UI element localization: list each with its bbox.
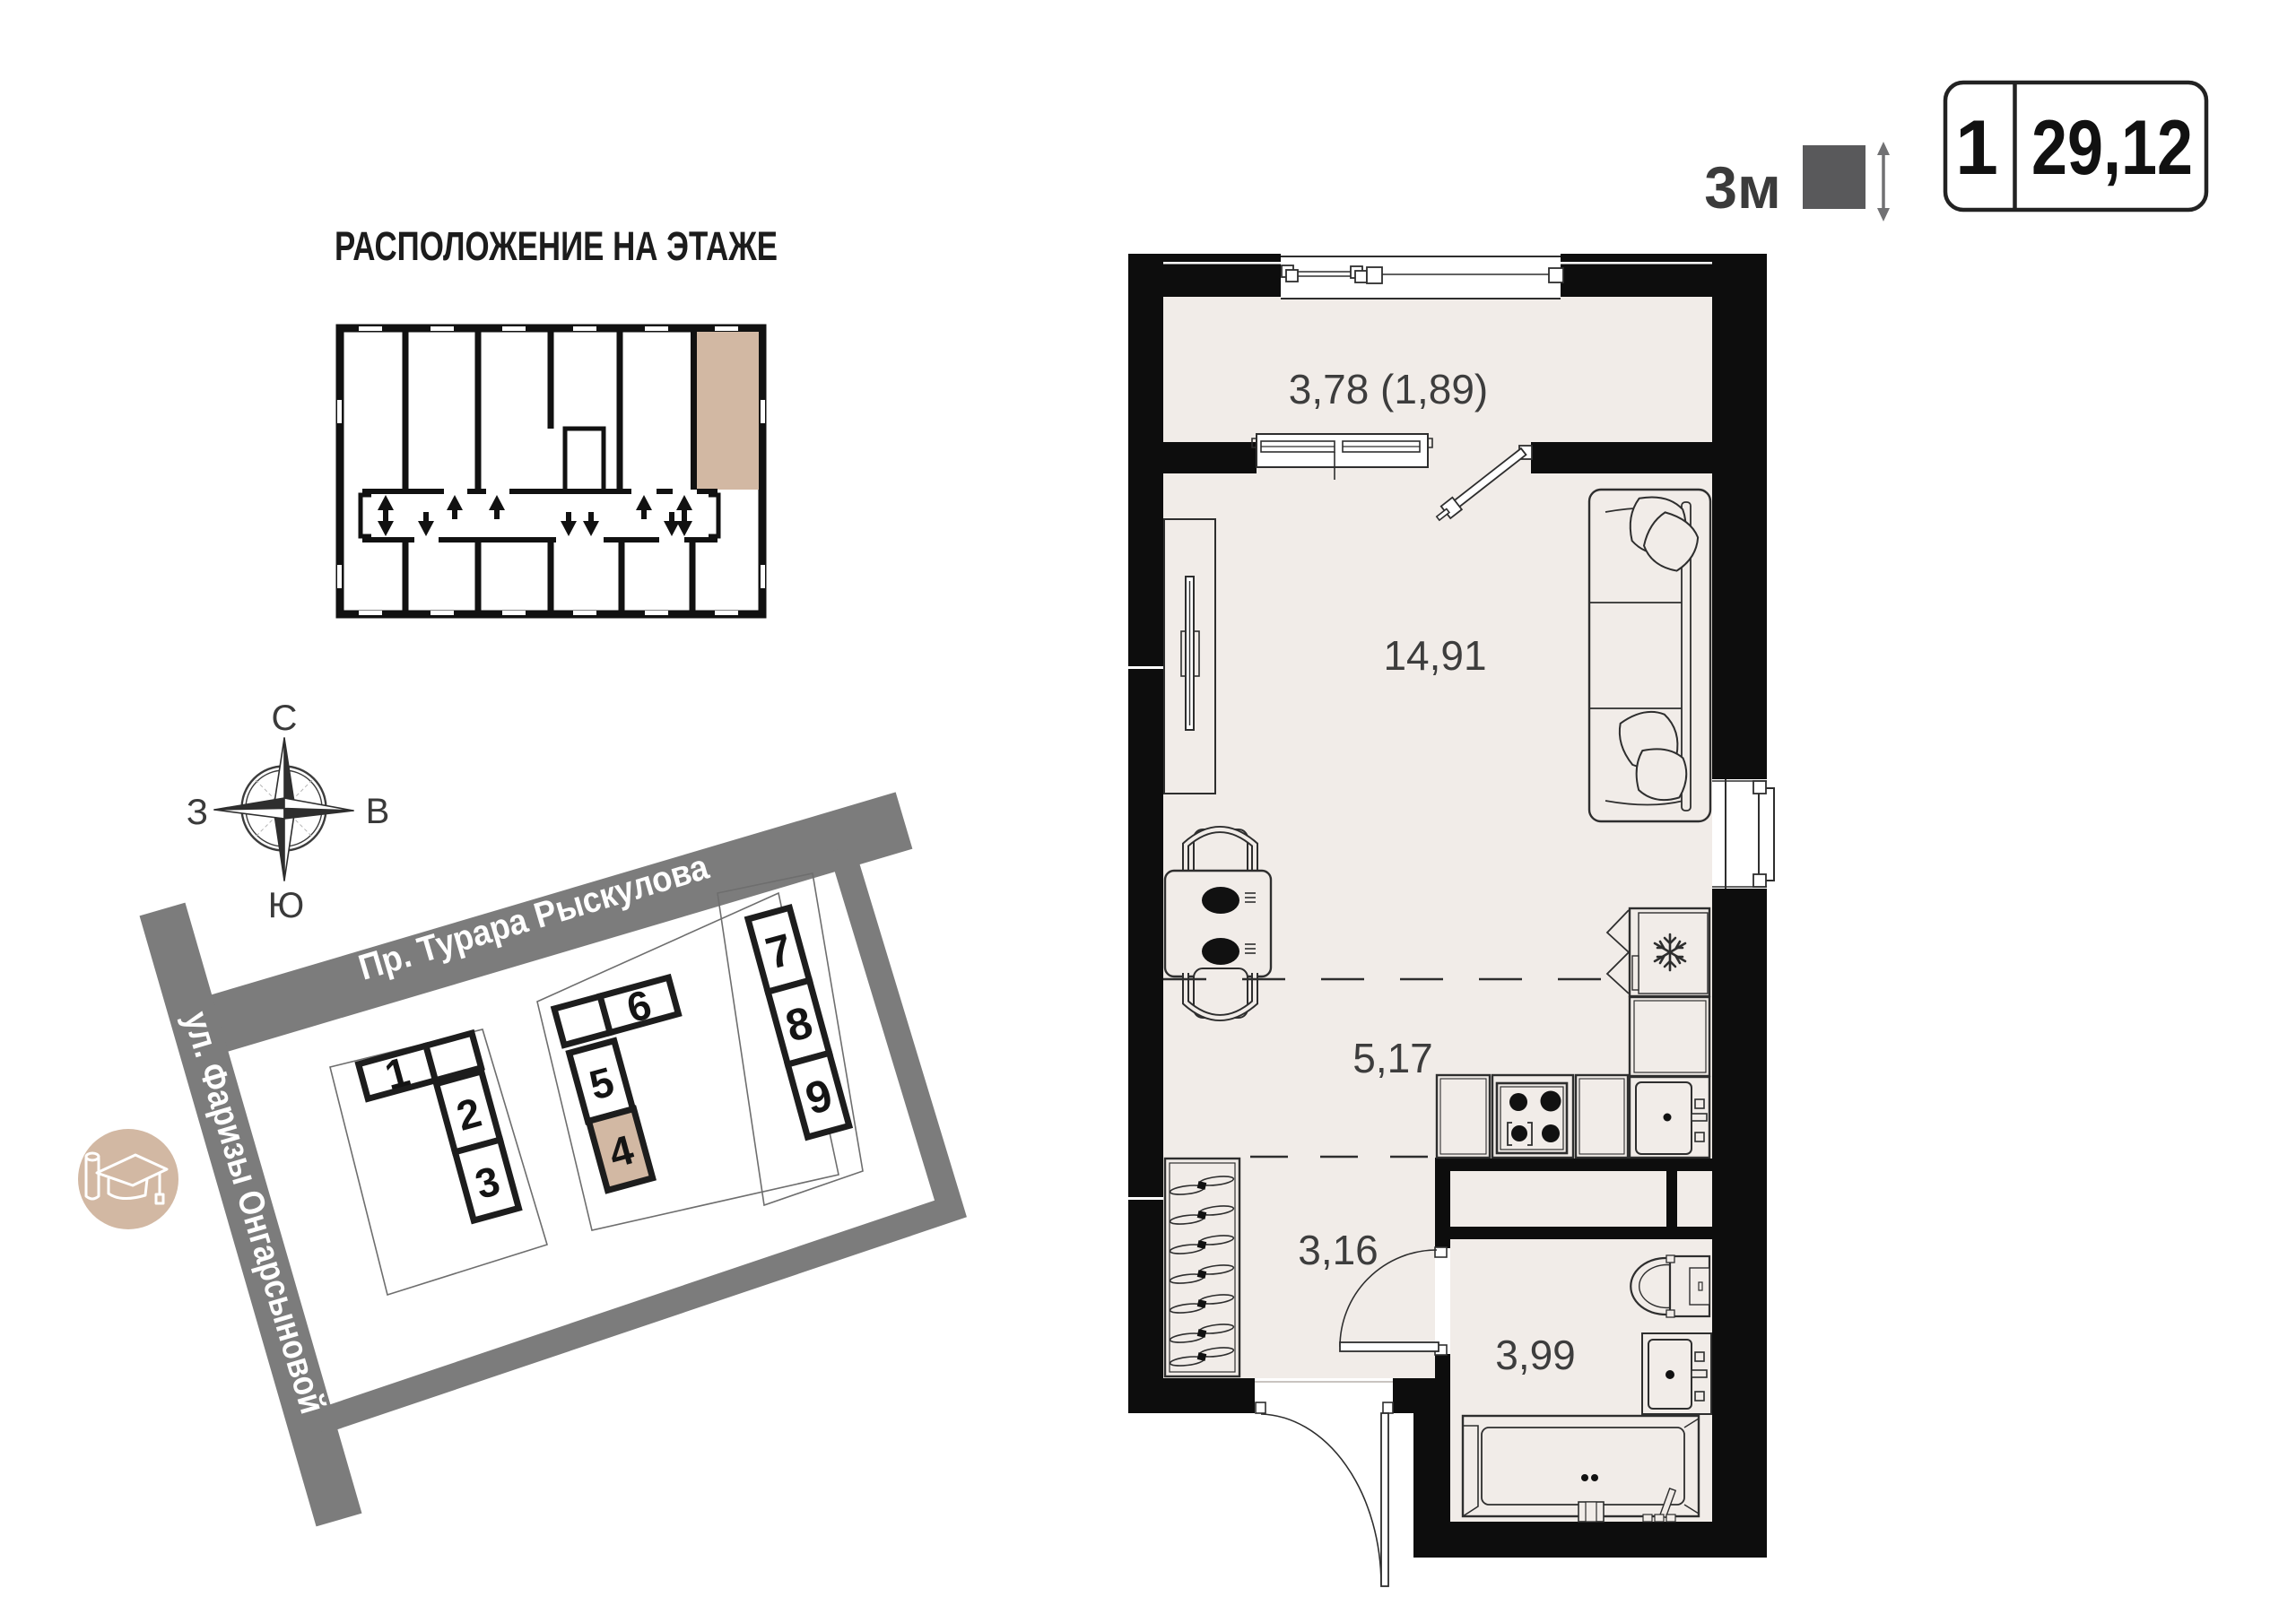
svg-text:З: З	[187, 793, 208, 832]
svg-text:14,91: 14,91	[1383, 632, 1486, 679]
svg-text:1: 1	[1955, 105, 1998, 191]
svg-text:3м: 3м	[1704, 154, 1781, 221]
svg-text:С: С	[272, 699, 298, 738]
svg-text:В: В	[366, 792, 390, 831]
svg-text:3,99: 3,99	[1495, 1332, 1576, 1378]
svg-text:Ю: Ю	[268, 886, 304, 925]
svg-text:5,17: 5,17	[1352, 1035, 1433, 1081]
svg-text:РАСПОЛОЖЕНИЕ НА ЭТАЖЕ: РАСПОЛОЖЕНИЕ НА ЭТАЖЕ	[335, 223, 778, 269]
svg-text:29,12: 29,12	[2031, 105, 2193, 191]
svg-text:3,78 (1,89): 3,78 (1,89)	[1289, 366, 1488, 412]
svg-text:3,16: 3,16	[1298, 1227, 1378, 1273]
